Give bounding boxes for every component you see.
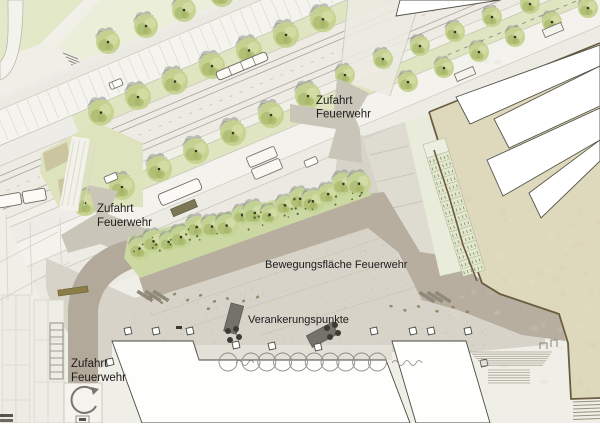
svg-text:Zufahrt: Zufahrt (316, 95, 353, 107)
svg-text:Zufahrt: Zufahrt (71, 358, 108, 370)
svg-text:Feuerwehr: Feuerwehr (316, 109, 371, 121)
svg-text:Feuerwehr: Feuerwehr (97, 217, 152, 229)
svg-text:Zufahrt: Zufahrt (97, 203, 134, 215)
svg-text:Bewegungsfläche Feuerwehr: Bewegungsfläche Feuerwehr (265, 259, 408, 271)
svg-text:Feuerwehr: Feuerwehr (71, 372, 126, 384)
svg-text:Verankerungspunkte: Verankerungspunkte (248, 314, 349, 326)
